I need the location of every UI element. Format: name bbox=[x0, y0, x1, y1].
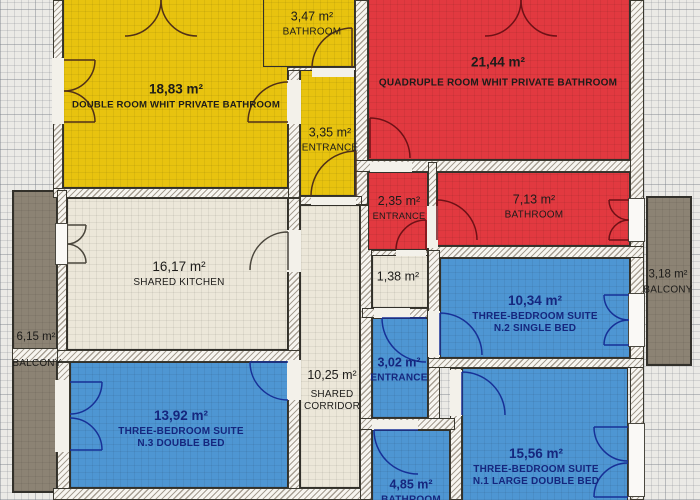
door-arc bbox=[396, 220, 426, 250]
label-quadruple-room: 21,44 m² QUADRUPLE ROOM WHIT PRIVATE BAT… bbox=[379, 55, 617, 90]
room-area: 3,18 m² bbox=[643, 268, 692, 282]
label-balcony-left-area: 6,15 m² bbox=[17, 331, 56, 347]
room-subname: N.2 SINGLE BED bbox=[472, 323, 597, 335]
room-area: 3,35 m² bbox=[302, 126, 359, 141]
room-subname: N.3 DOUBLE BED bbox=[118, 438, 243, 450]
door-arc bbox=[462, 372, 505, 415]
room-name: SHARED KITCHEN bbox=[133, 277, 224, 289]
room-name: BALCONY bbox=[12, 358, 61, 370]
label-entrance-mid: 2,35 m² ENTRANCE bbox=[373, 194, 426, 222]
window-leaf-arc bbox=[609, 200, 629, 220]
room-area: 13,92 m² bbox=[118, 408, 243, 424]
window-leaf-arc bbox=[67, 225, 86, 244]
room-subname: N.1 LARGE DOUBLE BED bbox=[473, 476, 599, 488]
room-area: 4,85 m² bbox=[381, 478, 441, 493]
room-name: SHARED CORRIDOR bbox=[297, 389, 367, 413]
label-bathroom-top: 3,47 m² BATHROOM bbox=[283, 10, 342, 39]
room-area: 18,83 m² bbox=[72, 81, 280, 97]
label-store-room: 1,38 m² bbox=[377, 270, 419, 287]
room-name: THREE-BEDROOM SUITE bbox=[472, 311, 597, 323]
window-leaf-arc bbox=[609, 220, 629, 240]
door-arc bbox=[437, 200, 477, 240]
room-area: 1,38 m² bbox=[377, 270, 419, 285]
door-arc bbox=[70, 418, 102, 450]
room-name: BALCONY bbox=[643, 284, 692, 296]
label-suite-n3: 13,92 m² THREE-BEDROOM SUITE N.3 DOUBLE … bbox=[118, 408, 243, 450]
room-name: BATHROOM bbox=[283, 26, 342, 38]
room-name: THREE-BEDROOM SUITE bbox=[473, 464, 599, 476]
room-name: DOUBLE ROOM WHIT PRIVATE BATHROOM bbox=[72, 99, 280, 110]
label-balcony-left-name: BALCONY bbox=[12, 358, 61, 370]
room-name: THREE-BEDROOM SUITE bbox=[118, 426, 243, 438]
room-area: 7,13 m² bbox=[505, 193, 564, 208]
room-name: ENTRANCE bbox=[302, 142, 359, 154]
room-area: 15,56 m² bbox=[473, 446, 599, 462]
room-name: ENTRANCE bbox=[373, 211, 426, 222]
room-name: BATHROOM bbox=[505, 209, 564, 221]
door-arc bbox=[161, 0, 197, 36]
label-suite-n1: 15,56 m² THREE-BEDROOM SUITE N.1 LARGE D… bbox=[473, 446, 599, 488]
door-arc bbox=[374, 430, 418, 474]
room-area: 21,44 m² bbox=[379, 55, 617, 71]
label-suite-n2: 10,34 m² THREE-BEDROOM SUITE N.2 SINGLE … bbox=[472, 293, 597, 335]
room-area: 10,25 m² bbox=[297, 368, 367, 383]
window-leaf-arc bbox=[604, 320, 629, 345]
floor-plan: 18,83 m² DOUBLE ROOM WHIT PRIVATE BATHRO… bbox=[0, 0, 700, 500]
room-name: ENTRANCE bbox=[370, 372, 427, 384]
door-arc bbox=[125, 0, 161, 36]
window-leaf-arc bbox=[67, 244, 86, 263]
label-corridor: 10,25 m² SHARED CORRIDOR bbox=[297, 368, 367, 412]
room-area: 3,02 m² bbox=[370, 356, 427, 371]
label-entrance-top: 3,35 m² ENTRANCE bbox=[302, 126, 359, 155]
room-area: 2,35 m² bbox=[373, 194, 426, 209]
room-area: 3,47 m² bbox=[283, 10, 342, 25]
door-arc bbox=[370, 118, 410, 158]
room-area: 16,17 m² bbox=[133, 259, 224, 275]
door-arc bbox=[250, 362, 288, 400]
label-entrance-low: 3,02 m² ENTRANCE bbox=[370, 356, 427, 385]
room-name: BATHROOM bbox=[381, 494, 441, 500]
label-balcony-right: 3,18 m² BALCONY bbox=[643, 268, 692, 295]
room-name: QUADRUPLE ROOM WHIT PRIVATE BATHROOM bbox=[379, 78, 617, 90]
door-arc bbox=[250, 232, 288, 270]
door-arc bbox=[485, 0, 521, 36]
door-arc bbox=[70, 382, 102, 414]
label-double-room: 18,83 m² DOUBLE ROOM WHIT PRIVATE BATHRO… bbox=[72, 81, 280, 110]
label-bathroom-low: 4,85 m² BATHROOM bbox=[381, 478, 441, 500]
window-leaf-arc bbox=[604, 295, 629, 320]
door-arc bbox=[311, 151, 356, 196]
door-arc bbox=[521, 0, 557, 36]
label-shared-kitchen: 16,17 m² SHARED KITCHEN bbox=[133, 259, 224, 289]
room-area: 6,15 m² bbox=[17, 331, 56, 345]
label-bathroom-mid: 7,13 m² BATHROOM bbox=[505, 193, 564, 222]
room-area: 10,34 m² bbox=[472, 293, 597, 309]
